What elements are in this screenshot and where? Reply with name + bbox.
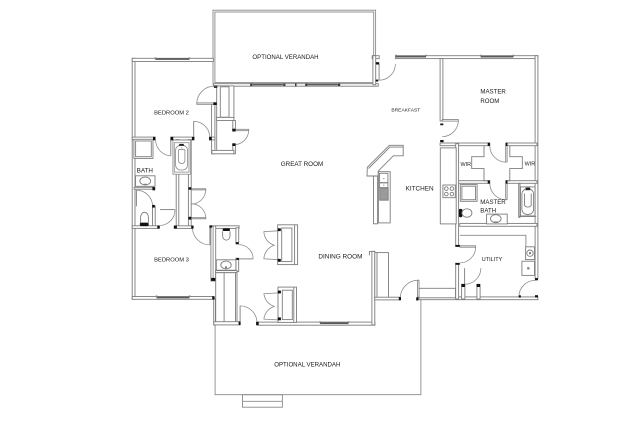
- svg-text:MASTER: MASTER: [480, 199, 506, 206]
- svg-text:KITCHEN: KITCHEN: [406, 185, 434, 192]
- svg-text:BEDROOM 2: BEDROOM 2: [154, 111, 189, 117]
- svg-text:OPTIONAL VERANDAH: OPTIONAL VERANDAH: [274, 362, 340, 369]
- svg-text:BEDROOM 3: BEDROOM 3: [154, 257, 189, 263]
- svg-text:BREAKFAST: BREAKFAST: [391, 107, 420, 113]
- svg-text:BATH: BATH: [480, 208, 496, 215]
- svg-text:ROOM: ROOM: [480, 98, 499, 105]
- svg-text:BATH: BATH: [137, 167, 154, 174]
- svg-text:UTILITY: UTILITY: [482, 257, 503, 263]
- svg-text:OPTIONAL VERANDAH: OPTIONAL VERANDAH: [252, 54, 318, 61]
- svg-text:GREAT ROOM: GREAT ROOM: [281, 161, 323, 168]
- svg-text:DINING ROOM: DINING ROOM: [318, 254, 362, 261]
- svg-text:MASTER: MASTER: [480, 89, 506, 96]
- svg-text:WIR: WIR: [461, 162, 472, 168]
- svg-text:WIR: WIR: [525, 161, 536, 167]
